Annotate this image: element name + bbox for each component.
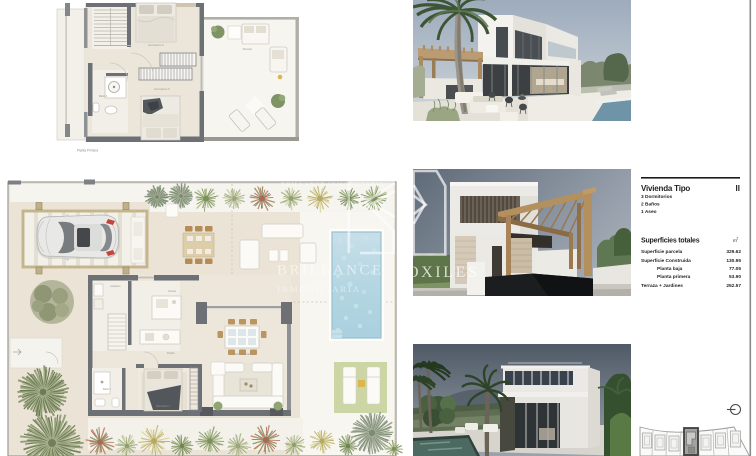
svg-text:Dormitorio 3: Dormitorio 3 (154, 87, 170, 91)
svg-text:Planta primera: Planta primera (657, 274, 691, 280)
svg-text:BRILLANCE: BRILLANCE (277, 263, 384, 279)
svg-text:Terraza + Jardines: Terraza + Jardines (641, 283, 683, 289)
svg-text:Dormitorio 2: Dormitorio 2 (148, 43, 164, 47)
svg-text:77.05: 77.05 (729, 266, 741, 272)
svg-text:Planta baja: Planta baja (657, 266, 683, 272)
svg-text:Salón-Comedor: Salón-Comedor (233, 353, 251, 356)
svg-text:Planta Primera: Planta Primera (77, 149, 98, 153)
svg-text:OXILES: OXILES (407, 264, 479, 281)
svg-text:329.62: 329.62 (726, 249, 741, 255)
svg-text:II: II (736, 184, 740, 193)
svg-text:2 Baños: 2 Baños (641, 202, 660, 208)
svg-text:Baño 2: Baño 2 (99, 94, 108, 98)
svg-text:Vivienda Tipo: Vivienda Tipo (641, 184, 690, 193)
svg-text:Superficie parcela: Superficie parcela (641, 249, 683, 255)
svg-text:Dormitorio 1: Dormitorio 1 (156, 405, 170, 408)
svg-text:Cocina: Cocina (168, 290, 176, 293)
svg-text:Lavadero: Lavadero (110, 285, 121, 288)
svg-text:2: 2 (737, 237, 739, 241)
svg-text:Terraza: Terraza (242, 47, 252, 51)
svg-text:53.90: 53.90 (729, 274, 741, 280)
svg-text:INMOBILIARIA: INMOBILIARIA (277, 284, 361, 294)
svg-text:Superficie Construida: Superficie Construida (641, 258, 691, 264)
svg-text:Pasillo: Pasillo (167, 352, 175, 355)
svg-text:3 Dormitorios: 3 Dormitorios (641, 194, 673, 200)
svg-text:1 Aseo: 1 Aseo (641, 209, 657, 215)
svg-text:130.95: 130.95 (726, 258, 741, 264)
svg-text:BRILLANCE INMOBILIARIA: BRILLANCE INMOBILIARIA (281, 182, 385, 188)
svg-text:Superficies totales: Superficies totales (641, 238, 700, 245)
svg-text:252.57: 252.57 (726, 283, 741, 289)
svg-text:Baño 1: Baño 1 (103, 388, 112, 391)
